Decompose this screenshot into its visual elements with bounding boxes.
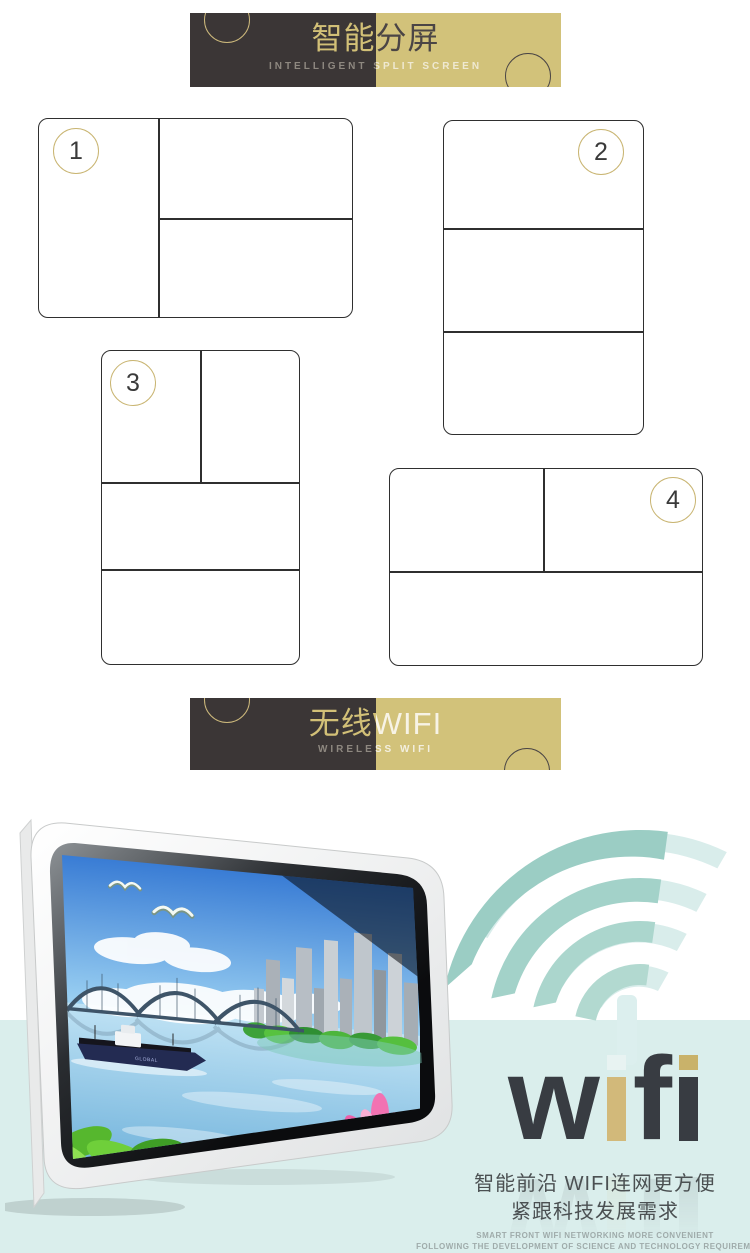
i-stem-gold xyxy=(607,1077,626,1141)
diagram-number-badge: 3 xyxy=(110,360,156,406)
banner-title: 智能分屏 xyxy=(190,21,376,57)
split-layout-diagram-4: 4 xyxy=(389,468,703,666)
banner-title: 无线WIFI xyxy=(190,706,376,742)
wifi-letter-i-dark xyxy=(679,1055,698,1141)
split-layout-diagram-2: 2 xyxy=(443,120,644,435)
diagram-number-badge: 1 xyxy=(53,128,99,174)
banner-wireless-wifi: 无线WIFI 无线WIFI WIRELESS WIFI WIRELESS WIF… xyxy=(190,698,561,770)
divider xyxy=(200,351,202,482)
banner-title: 无线WIFI xyxy=(376,706,562,742)
diagram-number: 2 xyxy=(594,138,608,167)
split-layout-diagram-1: 1 xyxy=(38,118,353,318)
divider xyxy=(444,228,643,230)
wifi-letter-f: f xyxy=(633,1040,672,1158)
diagram-number: 3 xyxy=(126,369,140,398)
banner-subtitle: WIRELESS WIFI xyxy=(190,743,376,757)
split-layout-diagram-3: 3 xyxy=(101,350,300,665)
banner-subtitle: INTELLIGENT SPLIT SCREEN xyxy=(190,60,376,74)
tagline-line2: 紧跟科技发展需求 xyxy=(400,1198,750,1226)
divider xyxy=(102,482,299,484)
tagline-line1: 智能前沿 WIFI连网更方便 xyxy=(400,1170,750,1198)
wifi-letter-i-gold xyxy=(607,1055,626,1141)
diagram-number: 4 xyxy=(666,486,680,515)
diagram-number-badge: 2 xyxy=(578,129,624,175)
wifi-letter-w: w xyxy=(508,1040,600,1158)
wifi-wordmark: w f xyxy=(508,1036,705,1158)
divider xyxy=(158,218,352,220)
banner-split-screen: 智能分屏 智能分屏 INTELLIGENT SPLIT SCREEN INTEL… xyxy=(190,13,561,87)
banner-subtitle: INTELLIGENT SPLIT SCREEN xyxy=(376,60,562,74)
i-dot-gold xyxy=(679,1055,698,1070)
product-page: 智能分屏 智能分屏 INTELLIGENT SPLIT SCREEN INTEL… xyxy=(0,0,750,1253)
tagline-line3: SMART FRONT WIFI NETWORKING MORE CONVENI… xyxy=(400,1230,750,1241)
divider xyxy=(543,469,545,571)
footer-tagline: 智能前沿 WIFI连网更方便 紧跟科技发展需求 SMART FRONT WIFI… xyxy=(400,1170,750,1252)
banner-title: 智能分屏 xyxy=(376,21,562,57)
divider xyxy=(390,571,702,573)
divider xyxy=(102,569,299,571)
display-mockup: GLOBAL xyxy=(5,795,475,1225)
divider xyxy=(444,331,643,333)
monitor-shadow xyxy=(5,1198,185,1216)
i-dot-light xyxy=(607,1055,626,1070)
i-stem-dark xyxy=(679,1077,698,1141)
diagram-number: 1 xyxy=(69,137,83,166)
tagline-line4: FOLLOWING THE DEVELOPMENT OF SCIENCE AND… xyxy=(400,1241,750,1252)
wifi-arcs xyxy=(444,830,667,1021)
diagram-number-badge: 4 xyxy=(650,477,696,523)
banner-subtitle: WIRELESS WIFI xyxy=(376,743,562,757)
